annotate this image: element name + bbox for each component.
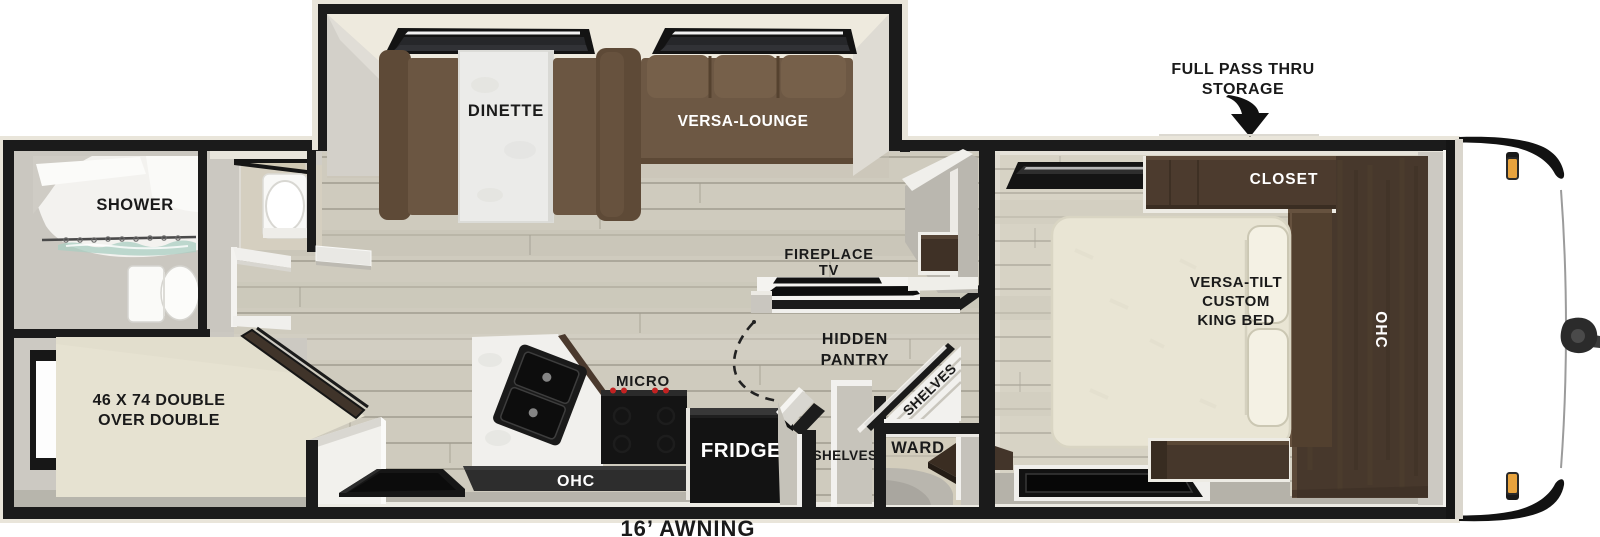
svg-text:16’ AWNING: 16’ AWNING: [620, 516, 755, 537]
svg-text:CUSTOM: CUSTOM: [1202, 293, 1270, 310]
svg-text:DINETTE: DINETTE: [468, 102, 544, 120]
svg-text:FRIDGE: FRIDGE: [701, 439, 781, 462]
svg-text:FULL PASS THRU: FULL PASS THRU: [1171, 61, 1314, 78]
svg-text:FIREPLACE: FIREPLACE: [784, 247, 873, 263]
svg-text:OHC: OHC: [1372, 311, 1389, 348]
svg-text:PANTRY: PANTRY: [821, 352, 890, 369]
svg-text:WARD: WARD: [891, 439, 945, 457]
svg-text:46 X 74 DOUBLE: 46 X 74 DOUBLE: [93, 392, 226, 409]
svg-text:TV: TV: [819, 263, 839, 279]
svg-text:SHOWER: SHOWER: [96, 196, 173, 214]
svg-text:CLOSET: CLOSET: [1250, 171, 1319, 188]
svg-text:SHELVES: SHELVES: [813, 448, 878, 463]
svg-text:VERSA-TILT: VERSA-TILT: [1190, 274, 1282, 291]
svg-text:VERSA-LOUNGE: VERSA-LOUNGE: [678, 113, 809, 130]
svg-text:MICRO: MICRO: [616, 373, 670, 390]
svg-text:KING BED: KING BED: [1197, 312, 1274, 329]
svg-text:OHC: OHC: [557, 473, 595, 490]
svg-text:STORAGE: STORAGE: [1202, 81, 1284, 98]
svg-text:OVER DOUBLE: OVER DOUBLE: [98, 412, 220, 429]
svg-text:HIDDEN: HIDDEN: [822, 331, 888, 348]
